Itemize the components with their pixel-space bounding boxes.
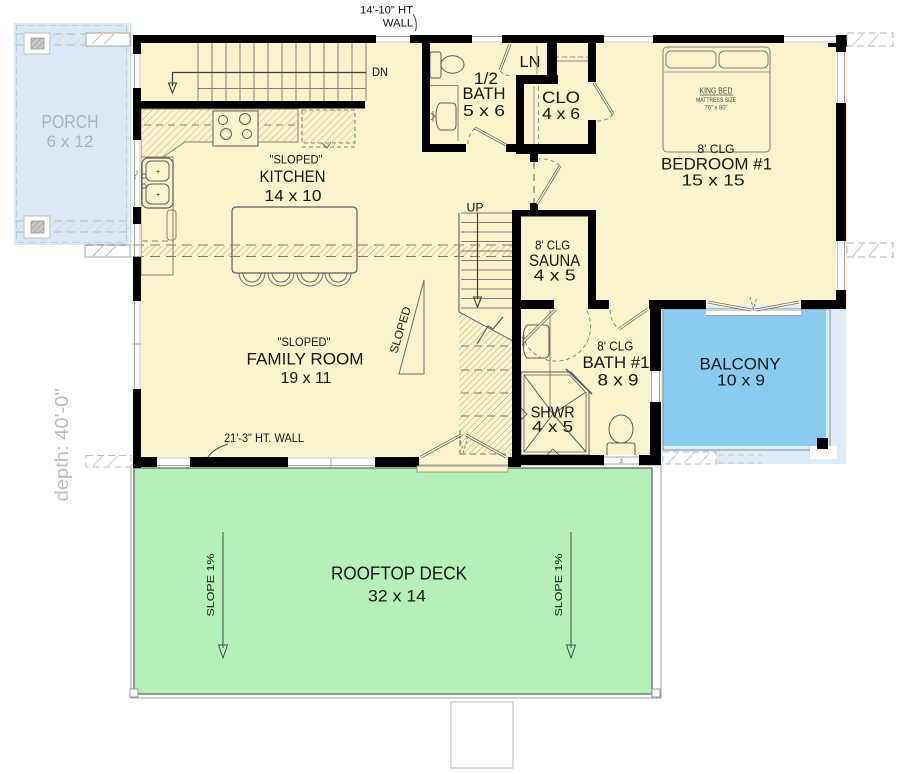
svg-text:14'-10" HT: 14'-10" HT (360, 5, 413, 17)
svg-text:ROOFTOP DECK: ROOFTOP DECK (331, 564, 467, 584)
svg-text:WALL: WALL (383, 18, 414, 30)
svg-text:depth: 40'-0": depth: 40'-0" (52, 389, 72, 502)
svg-text:6 x 12: 6 x 12 (47, 132, 94, 151)
svg-text:BATH: BATH (463, 84, 506, 103)
svg-text:KITCHEN: KITCHEN (260, 168, 326, 186)
svg-text:DN: DN (372, 65, 388, 79)
svg-text:32 x 14: 32 x 14 (368, 588, 426, 606)
svg-text:SLOPE 1%: SLOPE 1% (553, 554, 565, 617)
svg-text:4 x 6: 4 x 6 (542, 106, 580, 123)
svg-text:10 x 9: 10 x 9 (717, 373, 765, 390)
svg-text:21'-3" HT. WALL: 21'-3" HT. WALL (224, 433, 305, 445)
svg-text:8' CLG: 8' CLG (597, 340, 633, 354)
svg-text:14 x 10: 14 x 10 (265, 188, 322, 205)
svg-text:8' CLG: 8' CLG (535, 239, 570, 253)
svg-text:76" x 80": 76" x 80" (705, 105, 728, 111)
svg-text:BATH #1: BATH #1 (583, 353, 650, 372)
svg-text:"SLOPED": "SLOPED" (278, 337, 331, 349)
svg-text:+: + (156, 192, 160, 199)
svg-text:15 x 15: 15 x 15 (682, 173, 745, 190)
svg-text:CLO: CLO (542, 88, 580, 107)
svg-text:PORCH: PORCH (42, 112, 99, 132)
svg-text:FAMILY ROOM: FAMILY ROOM (247, 351, 364, 369)
svg-text:+: + (156, 169, 160, 176)
svg-text:KING BED: KING BED (700, 86, 733, 95)
svg-text:"SLOPED": "SLOPED" (270, 155, 323, 167)
svg-text:4 x 5: 4 x 5 (534, 268, 576, 285)
svg-text:19 x 11: 19 x 11 (281, 370, 332, 387)
svg-text:SLOPE 1%: SLOPE 1% (205, 554, 217, 617)
svg-text:MATTRESS SIZE: MATTRESS SIZE (696, 98, 736, 104)
svg-text:5 x 6: 5 x 6 (463, 103, 505, 120)
svg-text:UP: UP (467, 201, 484, 215)
svg-text:BALCONY: BALCONY (700, 355, 781, 374)
svg-text:8 x 9: 8 x 9 (598, 371, 639, 389)
svg-text:4 x 5: 4 x 5 (532, 419, 573, 436)
svg-text:BEDROOM #1: BEDROOM #1 (661, 155, 772, 174)
